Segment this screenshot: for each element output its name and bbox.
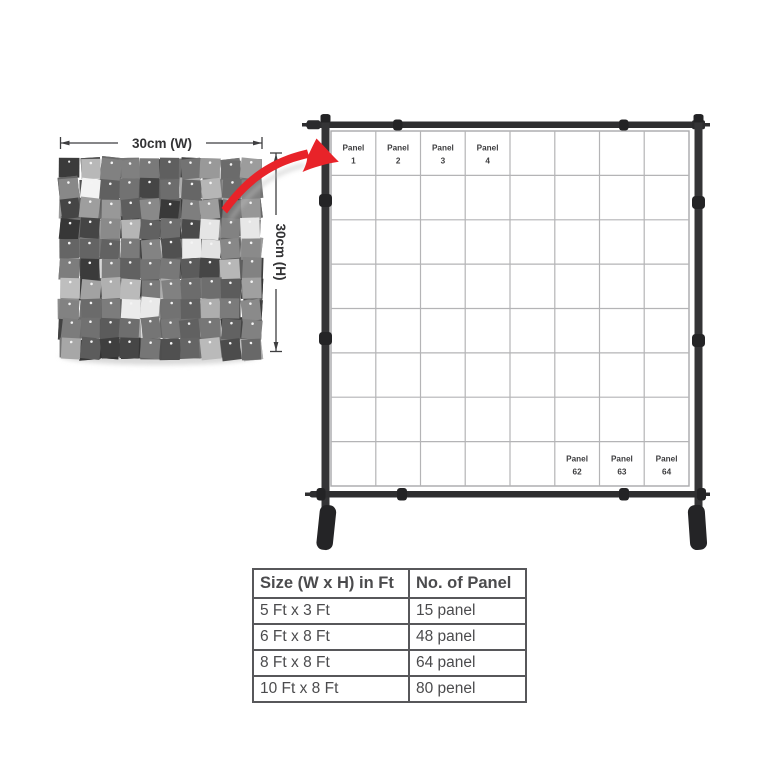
svg-text:30cm (H): 30cm (H): [273, 223, 288, 280]
svg-text:30cm (W): 30cm (W): [132, 136, 192, 151]
svg-text:Panel: Panel: [477, 144, 499, 153]
svg-text:Panel: Panel: [432, 144, 454, 153]
svg-text:64: 64: [662, 467, 672, 476]
svg-text:4: 4: [485, 157, 490, 166]
svg-text:1: 1: [351, 157, 356, 166]
svg-text:3: 3: [441, 157, 446, 166]
svg-text:63: 63: [617, 467, 627, 476]
svg-text:Panel: Panel: [656, 454, 678, 463]
svg-text:62: 62: [573, 467, 583, 476]
svg-text:2: 2: [396, 157, 401, 166]
svg-text:Panel: Panel: [611, 454, 633, 463]
svg-text:Panel: Panel: [342, 144, 364, 153]
svg-text:Panel: Panel: [387, 144, 409, 153]
svg-text:Panel: Panel: [566, 454, 588, 463]
